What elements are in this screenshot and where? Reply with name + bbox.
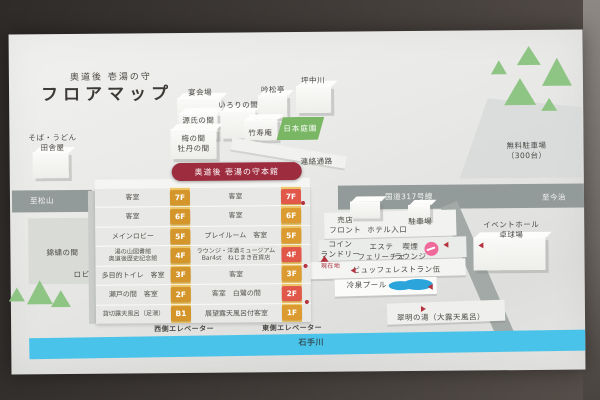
floor-row-5f: メインロビー 5F プレイルーム 客室 5F bbox=[95, 225, 310, 246]
kinshu-label: 錦繍の間 bbox=[46, 248, 78, 258]
smoking-lounge-label: 喫煙 ラウンジ bbox=[394, 242, 426, 263]
tree-icon bbox=[517, 46, 541, 65]
tree-icon bbox=[504, 78, 536, 105]
tsubonakagawa-block bbox=[296, 86, 331, 113]
center-label: プレイルーム 客室 bbox=[190, 231, 281, 240]
chikujuan-label: 竹寿庵 bbox=[248, 128, 272, 138]
road-label-to-imabari: 至今治 bbox=[542, 193, 566, 203]
free-parking-label: 無料駐車場 （300台） bbox=[506, 141, 546, 162]
center-label: 客室 bbox=[191, 270, 282, 279]
tsubonakagawa-label: 坪中川 bbox=[301, 76, 325, 86]
direction-arrow-icon bbox=[443, 242, 448, 248]
tree-icon bbox=[542, 58, 572, 86]
west-floor-chip: 4F bbox=[170, 248, 190, 263]
garden-label: 日本庭園 bbox=[283, 123, 317, 134]
floor-row-7f: 客室 7F 客室 7F bbox=[95, 186, 310, 207]
current-location-label: 現在地 bbox=[321, 263, 341, 271]
west-elevator-label: 西側エレベーター bbox=[154, 325, 214, 335]
tree-icon bbox=[491, 60, 507, 74]
direction-arrow-icon bbox=[428, 284, 433, 290]
east-floor-chip: 7F bbox=[281, 189, 301, 204]
soba-label: そば・うどん 田舎屋 bbox=[28, 133, 76, 154]
current-location-icon bbox=[320, 256, 328, 262]
corridor-label: 連絡通路 bbox=[301, 157, 333, 167]
japanese-garden-block: 日本庭園 bbox=[276, 117, 324, 140]
direction-arrow-icon bbox=[478, 242, 483, 248]
pool-label: 冷泉プール bbox=[347, 280, 387, 290]
hotel-entrance-label: ホテル入口 bbox=[367, 225, 407, 235]
center-label: ラウンジ・洋酒ミュージアム Bar4st ねじまき百貨店 bbox=[190, 247, 281, 264]
floor-row-2f: 瀬戸の間 客室 2F 客室 白鷺の間 2F bbox=[96, 283, 311, 304]
elevator-stop-dot bbox=[301, 201, 305, 205]
west-floor-chip: B1 bbox=[171, 306, 191, 321]
east-floor-chip: 2F bbox=[282, 286, 302, 301]
river-label: 石手川 bbox=[298, 338, 324, 349]
west-label: メインロビー bbox=[95, 232, 170, 241]
direction-arrow-icon bbox=[421, 306, 426, 312]
elevator-stop-dot bbox=[305, 300, 309, 304]
west-label: 客室 bbox=[95, 193, 170, 202]
signboard-tilt-wrapper: 奥道後 壱湯の守 フロアマップ 至松山 国道317号線 至今治 石手川 そば・う… bbox=[0, 0, 600, 400]
tree-icon bbox=[27, 280, 53, 304]
elevator-stop-dot bbox=[304, 264, 308, 268]
west-floor-chip: 2F bbox=[171, 287, 191, 302]
event-hall-label: イベントホール 卓球場 bbox=[483, 220, 539, 241]
page-title: フロアマップ bbox=[41, 83, 173, 107]
hotel-brand: 奥道後 壱湯の守 bbox=[70, 71, 152, 84]
east-floor-chip: 4F bbox=[281, 247, 301, 262]
east-floor-chip: 6F bbox=[281, 208, 301, 223]
west-label: 湯の山図書館 奥道後歴史記念館 bbox=[95, 248, 170, 264]
parking-label: 駐車場 bbox=[408, 217, 432, 227]
main-building-banner: 奥道後 壱湯の守本館 bbox=[172, 162, 302, 181]
open-air-bath-label: 翠明の湯（大露天風呂） bbox=[397, 312, 485, 323]
west-label: 客室 bbox=[95, 213, 170, 222]
west-label: 多目的トイレ 客室 bbox=[96, 271, 171, 280]
west-label: 貸切露天風呂（足湯） bbox=[96, 310, 171, 318]
east-floor-chip: 3F bbox=[282, 266, 302, 281]
floor-row-4f: 湯の山図書館 奥道後歴史記念館 4F ラウンジ・洋酒ミュージアム Bar4st … bbox=[95, 244, 310, 265]
shop-front-label: 売店 フロント bbox=[329, 215, 361, 236]
irori-label: いろりの間 bbox=[218, 100, 258, 110]
floor-row-b1: 貸切露天風呂（足湯） B1 展望露天風呂付客室 1F bbox=[96, 302, 311, 323]
center-label: 客室 bbox=[190, 192, 281, 201]
tree-icon bbox=[9, 287, 25, 301]
west-floor-chip: 5F bbox=[170, 229, 190, 244]
ginshotei-label: 吟松亭 bbox=[261, 85, 285, 95]
center-label: 客室 白鷺の間 bbox=[191, 289, 282, 298]
soba-block bbox=[33, 152, 69, 178]
east-elevator-label: 東側エレベーター bbox=[262, 324, 322, 334]
buffet-label: ビュッフェレストラン伍 bbox=[353, 265, 441, 276]
west-floor-chip: 7F bbox=[170, 190, 190, 205]
west-floor-chip: 6F bbox=[170, 209, 190, 224]
center-label: 展望露天風呂付客室 bbox=[191, 309, 282, 318]
tree-icon bbox=[51, 290, 71, 307]
east-floor-chip: 1F bbox=[282, 305, 302, 320]
west-label: 瀬戸の間 客室 bbox=[96, 290, 171, 299]
road-label-to-matsuyama: 至松山 bbox=[30, 196, 54, 206]
east-floor-chip: 5F bbox=[281, 228, 301, 243]
tree-icon bbox=[541, 98, 557, 111]
banquet-label: 宴会場 bbox=[188, 88, 212, 98]
floor-row-6f: 客室 6F 客室 6F bbox=[95, 205, 310, 226]
center-label: 客室 bbox=[190, 212, 281, 221]
ume-botan-label: 梅の間 牡丹の間 bbox=[177, 134, 209, 155]
floor-row-3f: 多目的トイレ 客室 3F 客室 3F bbox=[96, 264, 311, 285]
main-building: 客室 7F 客室 7F 客室 6F 客室 6F メインロビー 5F プレイルーム… bbox=[95, 186, 311, 324]
smoking-icon bbox=[424, 242, 438, 256]
direction-arrow-icon bbox=[351, 268, 356, 274]
event-hall-block bbox=[473, 237, 545, 271]
west-floor-chip: 3F bbox=[171, 267, 191, 282]
photo-of-floormap-sign: 奥道後 壱湯の守 フロアマップ 至松山 国道317号線 至今治 石手川 そば・う… bbox=[0, 0, 600, 400]
